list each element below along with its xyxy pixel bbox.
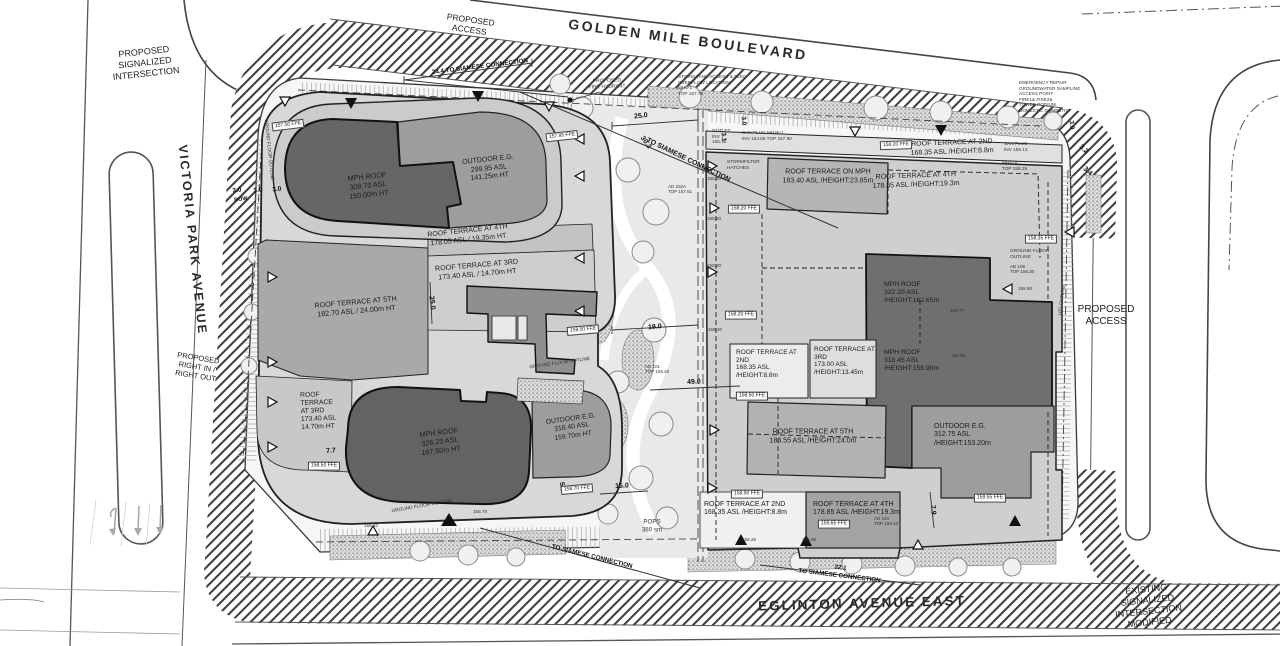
note-fire-hydrant: PROPOSED FIRE HYDRANT bbox=[588, 77, 625, 90]
dim-3-0-d: 3.0 bbox=[1067, 120, 1076, 130]
note-emergency-access: EMERGENCY REPAIR GROUNDWATER SAMPLING AC… bbox=[1019, 80, 1081, 113]
note-outlet: OUTLET INV 155.35 bbox=[712, 128, 731, 145]
spot-elevation: 158.20 bbox=[707, 176, 721, 182]
west-building bbox=[256, 92, 622, 524]
west-amenity-opening bbox=[518, 316, 527, 340]
note-san-plug-east: SAN PLUG INV 155.13 bbox=[1004, 141, 1028, 152]
east-terrace-2nd-bottom-label: ROOF TERRACE AT 2ND 168.35 ASL /HEIGHT:8… bbox=[704, 501, 787, 518]
east-terrace-on-mph-label: ROOF TERRACE ON MPH 183.40 ASL /HEIGHT:2… bbox=[783, 168, 874, 185]
dim-7-7: 7.7 bbox=[326, 447, 336, 456]
dim-25: 25.0 bbox=[634, 112, 649, 122]
ffe-badge: 158.20 FFE bbox=[728, 205, 760, 214]
east-terrace-2nd-mid-label: ROOF TERRACE AT 2ND 168.35 ASL /HEIGHT:8… bbox=[736, 349, 797, 380]
dim-3-0-b: 3.0 bbox=[253, 187, 263, 196]
west-terrace-3rd-lower-label: ROOF TERRACE AT 3RD 173.40 ASL 14.70m HT bbox=[300, 391, 337, 432]
east-outdoor-eg-label: OUTDOOR E.G. 312.75 ASL /HEIGHT:153.20m bbox=[934, 423, 991, 448]
site-plan-page: GOLDEN MILE BOULEVARD VICTORIA PARK AVEN… bbox=[0, 0, 1280, 646]
dim-19: 19.0 bbox=[648, 323, 662, 333]
east-terrace-2nd-top-label: ROOF TERRACE AT 2ND 168.35 ASL /HEIGHT:8… bbox=[910, 138, 994, 158]
west-mph-roof-lower-label: MPH ROOF 326.20 ASL 167.50m HT bbox=[419, 427, 461, 458]
west-mph-roof-upper-label: MPH ROOF 308.70 ASL 150.00m HT bbox=[347, 171, 389, 201]
ffe-badge: 159.65 FFE bbox=[818, 520, 850, 529]
dim-3-0-a: 3.0 bbox=[232, 187, 242, 196]
east-terrace-5th-label: ROOF TERRACE AT 5TH 183.55 ASL /HEIGHT:2… bbox=[770, 428, 857, 445]
note-ad-101: AD 101 TOP 158.20 bbox=[645, 364, 669, 375]
ffe-badge: 159.55 FFE bbox=[974, 494, 1006, 503]
note-mh47a: MH47A TOP 158.15 bbox=[1002, 160, 1027, 171]
ffe-badge: 158.50 FFE bbox=[308, 462, 340, 471]
note-stormfilter: STORMFILTER HATCHES bbox=[727, 159, 760, 170]
label-proposed-access-right: PROPOSED ACCESS bbox=[1078, 304, 1135, 328]
dim-7-9: 7.9 bbox=[927, 505, 937, 516]
fire-hydrant-symbol bbox=[567, 97, 572, 102]
spot-elevation: 158.40 bbox=[364, 523, 378, 529]
spot-elevation: 158.20 bbox=[707, 216, 721, 222]
dim-15: 15.0 bbox=[615, 482, 629, 491]
east-terrace-3rd-mid-label: ROOF TERRACE AT 3RD 173.00 ASL /HEIGHT:1… bbox=[814, 346, 875, 377]
ffe-badge: 158.20 FFE bbox=[725, 311, 757, 320]
east-mph-roof-b-label: MPH ROOF 318.45 ASL /HEIGHT:158.90m bbox=[884, 349, 939, 373]
east-mph-roof-a-label: MPH ROOF 322.20 ASL /HEIGHT:162.65m bbox=[884, 281, 939, 305]
spot-elevation: 158.95 bbox=[951, 353, 965, 359]
note-ad-104: AD 104 TOP 159.43 bbox=[874, 516, 898, 527]
east-terrace-4th-top-label: ROOF TERRACE AT 4TH 178.85 ASL /HEIGHT:1… bbox=[872, 171, 959, 191]
west-outdoor-eg-upper-label: OUTDOOR E.G. 299.95 ASL 141.25m HT bbox=[462, 154, 516, 185]
note-ad-202a: AD 202A TOP 157.61 bbox=[668, 184, 692, 195]
spot-elevation: 158.26 bbox=[742, 537, 756, 543]
ffe-badge: 158.35 FFE bbox=[1025, 235, 1057, 244]
west-hatched-patch bbox=[517, 378, 584, 404]
spot-elevation: 158.20 bbox=[708, 327, 722, 333]
spot-elevation: 158.60 bbox=[1018, 286, 1032, 292]
note-ground-floor-outline-east: GROUND FLOOR OUTLINE bbox=[1010, 249, 1049, 261]
ffe-badge: 158.90 FFE bbox=[731, 490, 763, 499]
spot-elevation: 158.20 bbox=[707, 263, 721, 269]
dim-3-0-c: 3.0 bbox=[272, 186, 282, 195]
spot-elevation: 158.95 bbox=[802, 537, 816, 543]
label-proposed-signalized-intersection: PROPOSED SIGNALIZED INTERSECTION bbox=[110, 43, 180, 83]
ffe-badge: 158.50 FFE bbox=[736, 392, 768, 401]
note-storm-tank: STORM TANK ACCESS & ELEC OVERFLOW LOCATI… bbox=[678, 74, 747, 97]
dim-3-0-e: 3.0 bbox=[739, 116, 748, 126]
note-san-plug-west: SAN PLUG MH46-1 INV 154.66 TOP 157.90 bbox=[742, 130, 792, 141]
spot-elevation: 158.77 bbox=[950, 308, 964, 314]
west-amenity-opening bbox=[492, 316, 516, 340]
label-existing-signalized-intersection: EXISTING SIGNALIZED INTERSECTION MODIFIE… bbox=[1112, 581, 1183, 632]
ffe-badge: 158.20 FFE bbox=[880, 140, 912, 150]
note-pops: POPS 380 sm bbox=[642, 518, 662, 533]
note-ad-106: AD 106 TOP 158.30 bbox=[1010, 264, 1034, 275]
dim-49: 49.0 bbox=[687, 378, 701, 387]
dim-25-vertical: 25.0 bbox=[426, 296, 436, 310]
spot-elevation: 158.70 bbox=[473, 509, 487, 515]
